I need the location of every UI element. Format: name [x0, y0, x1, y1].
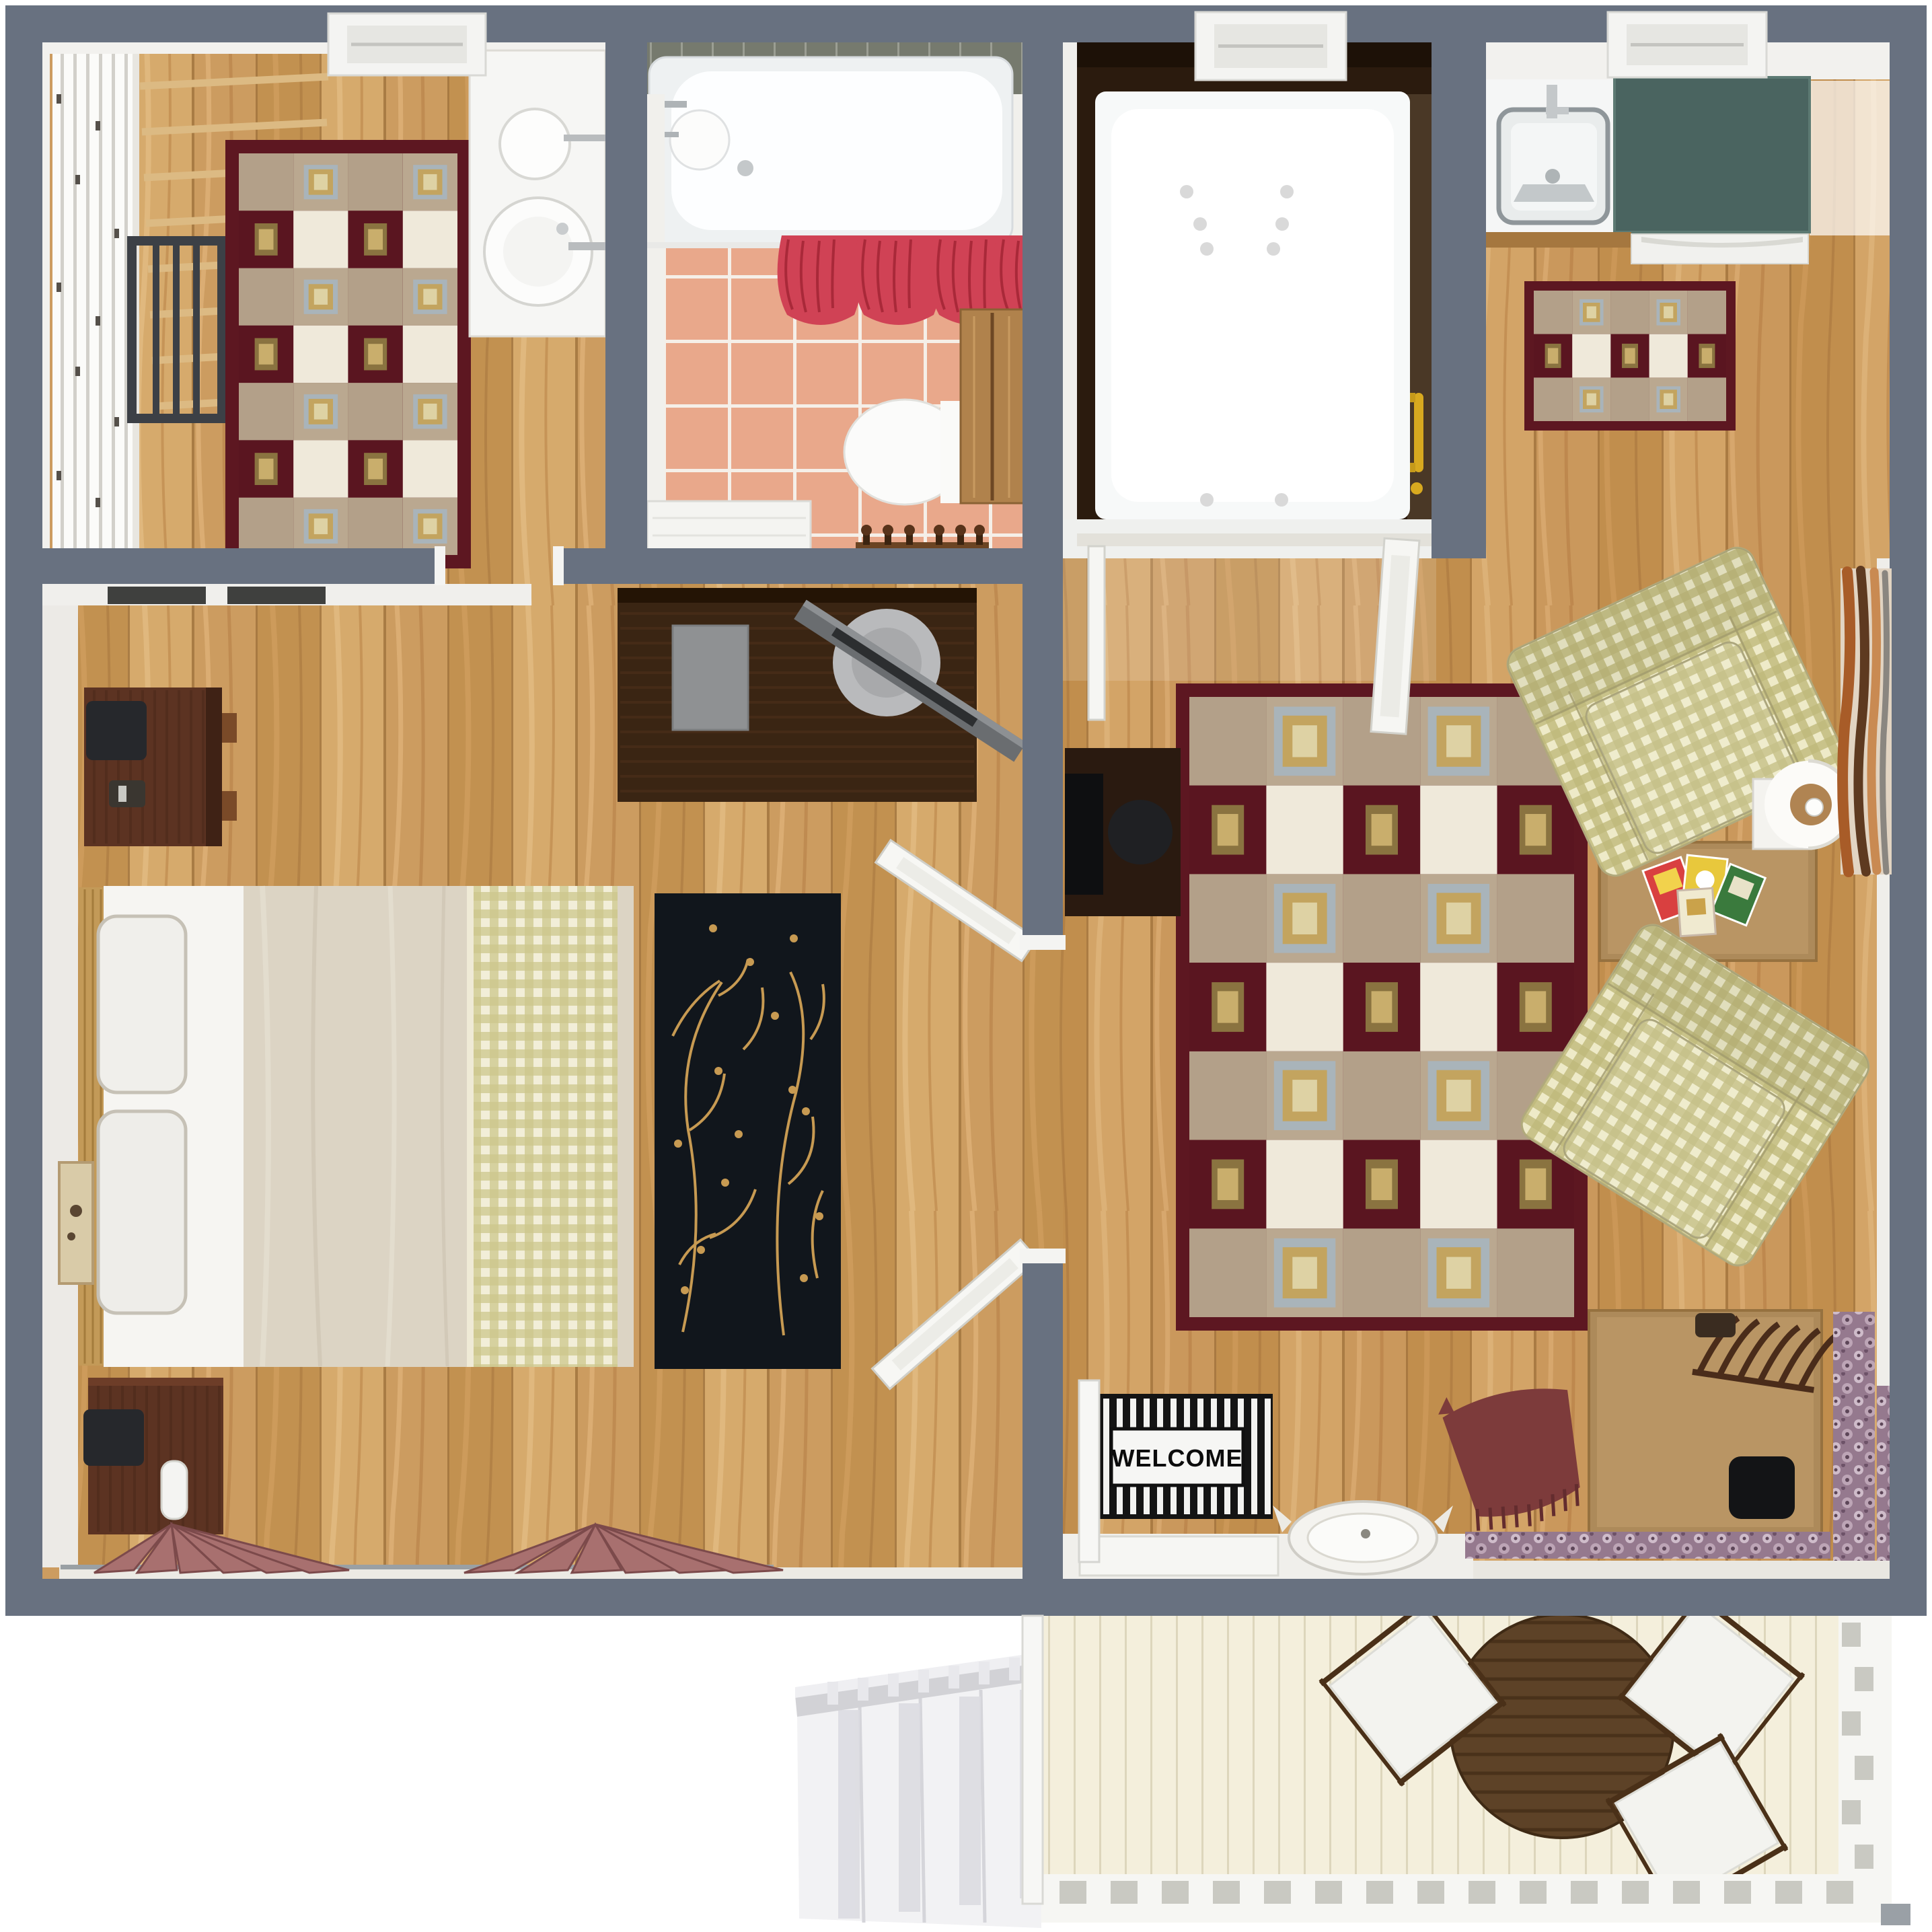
- svg-text:WELCOME: WELCOME: [1112, 1444, 1243, 1472]
